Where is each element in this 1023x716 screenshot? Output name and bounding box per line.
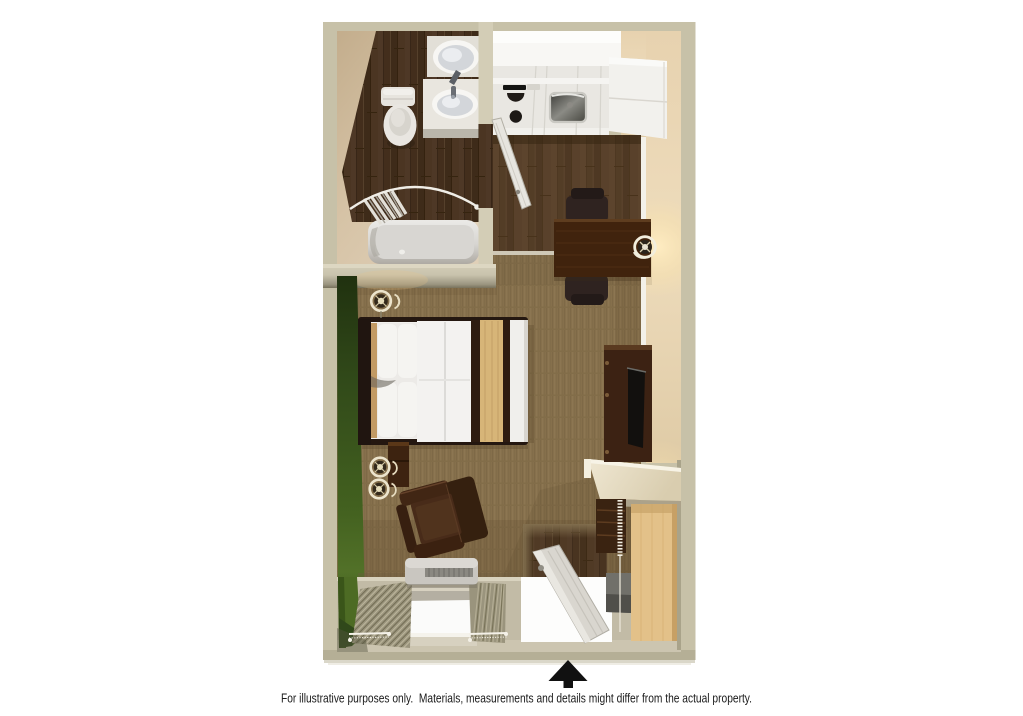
svg-text:For illustrative purposes only: For illustrative purposes only. Material… xyxy=(281,691,752,706)
